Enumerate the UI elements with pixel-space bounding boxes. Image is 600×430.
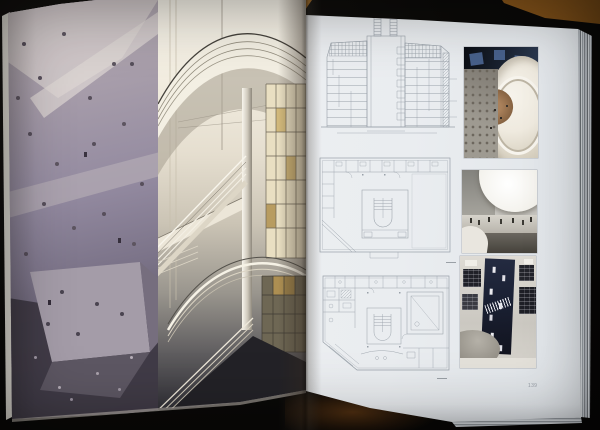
people-marks	[464, 47, 466, 49]
window-grid	[462, 294, 479, 310]
window-grid	[463, 269, 481, 287]
climbing-wall-from-above	[464, 69, 498, 158]
climber-figures	[0, 0, 3, 5]
climbing-holds-light	[0, 0, 3, 3]
wall-poster	[524, 259, 533, 263]
skylight-pane	[469, 52, 484, 66]
photo-atrium-overhead	[464, 47, 538, 158]
page-number: 139	[528, 383, 537, 389]
book-photograph: THE ALBRON CENTER	[0, 0, 600, 430]
banner-text-band	[485, 297, 512, 314]
wall-poster	[465, 260, 477, 266]
scale-bar-upper-plan	[446, 262, 456, 263]
skylight-pane	[494, 50, 506, 60]
drawing-building-section	[317, 13, 457, 137]
climbing-holds-dark	[0, 0, 4, 4]
window-grid	[519, 287, 536, 314]
photo-hall-canopy	[462, 170, 537, 253]
photo-athletes-banner	[460, 256, 536, 368]
people-figures	[462, 170, 464, 175]
window-grid	[519, 265, 534, 281]
scale-bar-ground-plan	[437, 378, 447, 379]
book-gutter-shadow	[278, 0, 336, 430]
athlete-pictograms	[485, 259, 488, 265]
floor-strip	[460, 358, 536, 368]
running-head: THE ALBRON CENTER	[486, 15, 542, 20]
